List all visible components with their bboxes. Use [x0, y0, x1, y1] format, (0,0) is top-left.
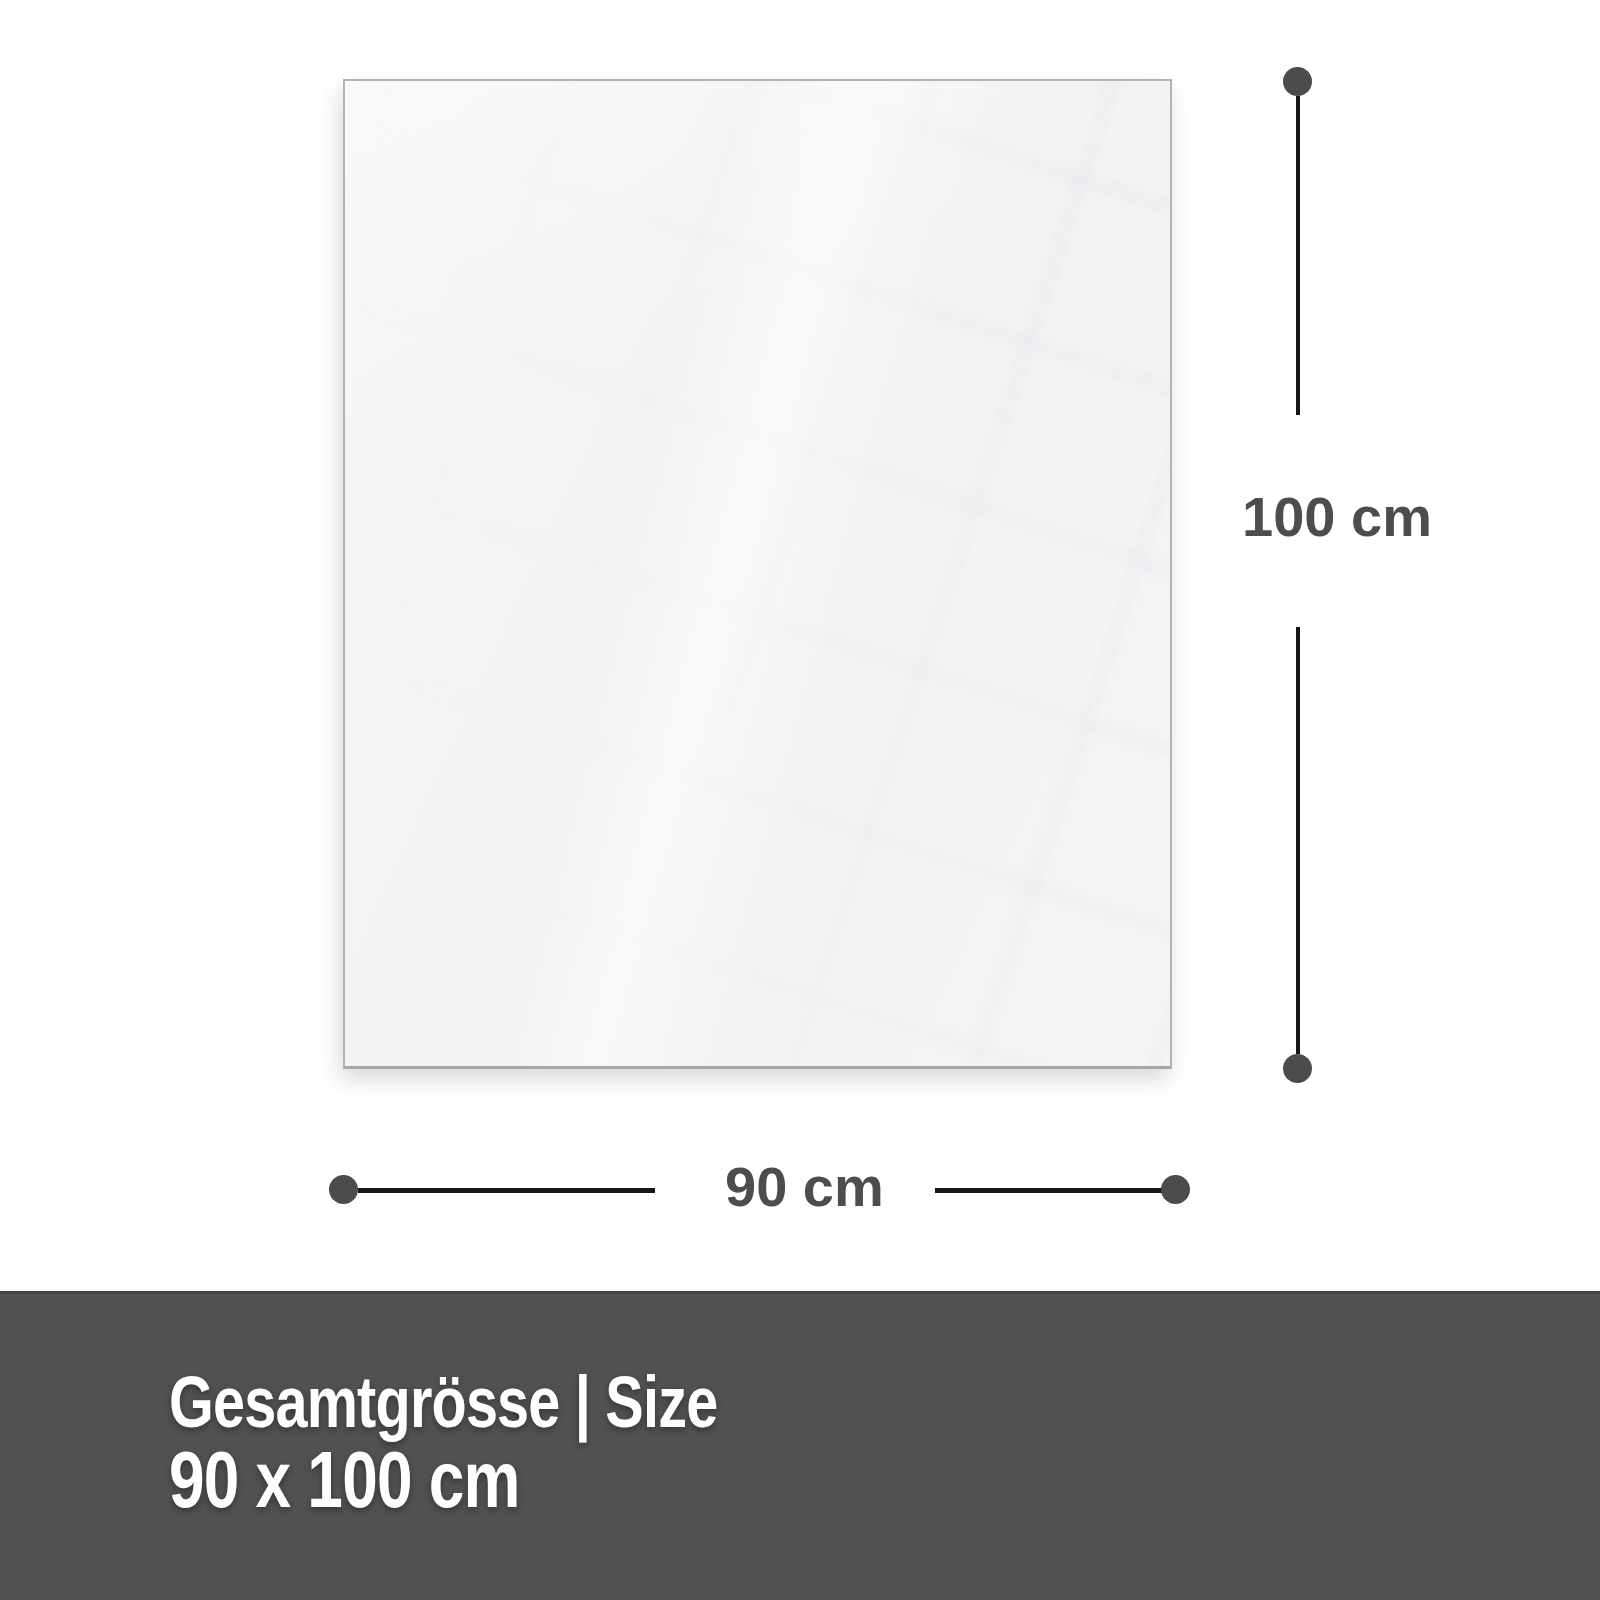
glass-sheen-highlight	[345, 81, 1170, 1066]
footer-title: Gesamtgrösse | Size	[169, 1366, 717, 1438]
width-dimension-label: 90 cm	[725, 1159, 884, 1215]
width-endpoint-right-dot	[1161, 1175, 1190, 1204]
glass-panel	[343, 79, 1172, 1069]
product-size-diagram: 100 cm 90 cm Gesamtgrösse | Size 90 x 10…	[0, 0, 1600, 1600]
width-endpoint-left-dot	[329, 1175, 358, 1204]
height-dimension-line-lower	[1296, 627, 1300, 1054]
height-dimension-line-upper	[1296, 96, 1300, 415]
width-dimension-line-left	[358, 1188, 655, 1193]
size-footer: Gesamtgrösse | Size 90 x 100 cm	[0, 1291, 1600, 1600]
width-dimension-line-right	[935, 1188, 1162, 1193]
height-dimension-label: 100 cm	[1242, 489, 1432, 545]
height-endpoint-top-dot	[1283, 67, 1312, 96]
height-endpoint-bottom-dot	[1283, 1054, 1312, 1083]
footer-size-value: 90 x 100 cm	[169, 1440, 520, 1520]
